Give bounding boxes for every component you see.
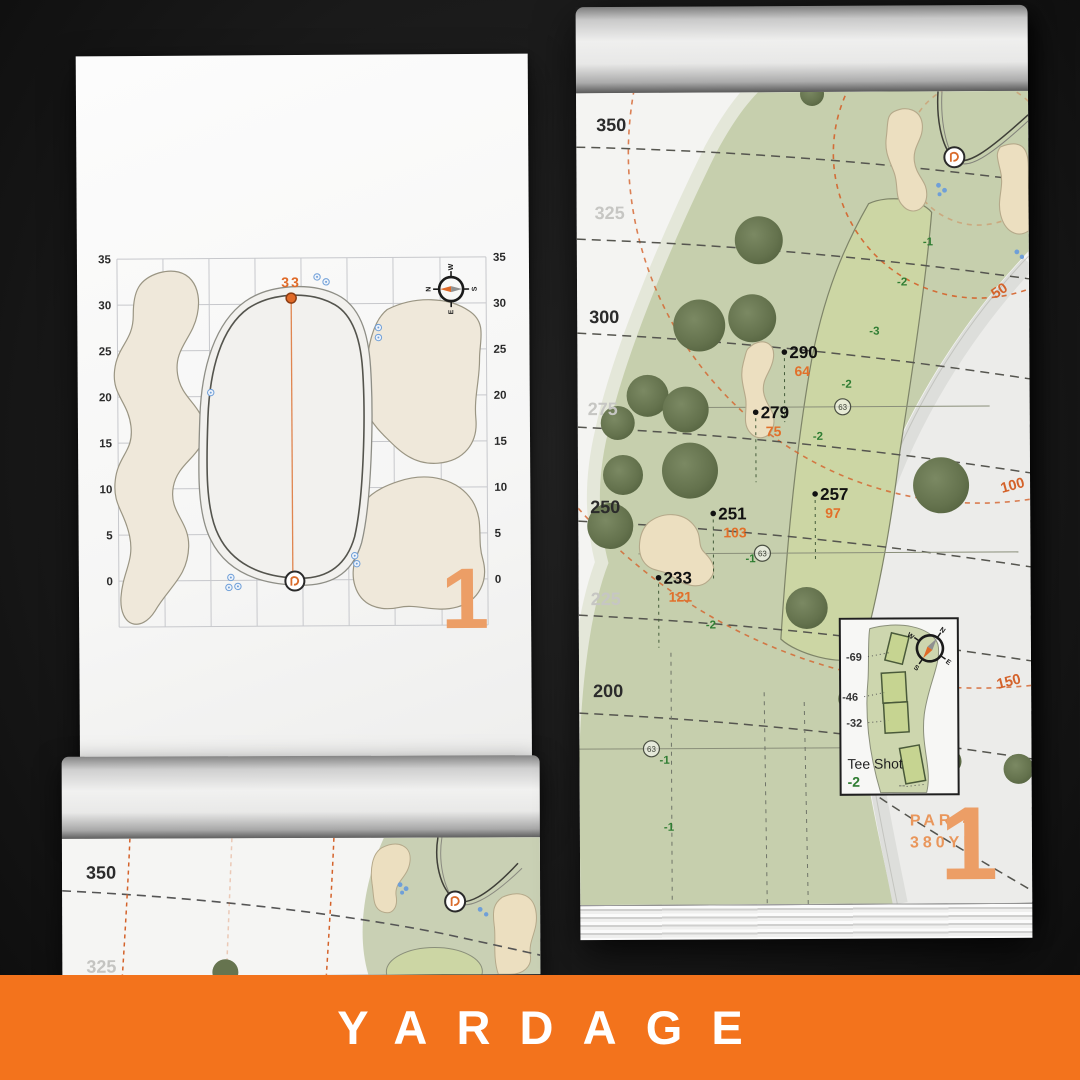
hole-number: 1 — [940, 786, 998, 902]
svg-text:10: 10 — [100, 484, 113, 496]
svg-text:233: 233 — [664, 569, 692, 588]
preview-tick-350: 350 — [86, 863, 116, 883]
svg-text:75: 75 — [766, 423, 782, 439]
svg-text:-2: -2 — [813, 431, 823, 443]
svg-text:63: 63 — [838, 403, 847, 412]
svg-text:350: 350 — [596, 115, 626, 135]
pin-distance-label: 33 — [281, 274, 301, 290]
hole-map-sheet: -1 -2 -3 -2 -2 -1 -2 -1 -1 63 63 — [576, 91, 1032, 905]
svg-text:-2: -2 — [842, 379, 852, 391]
left-yardage-page: 33 — [76, 54, 533, 817]
svg-text:30: 30 — [98, 300, 111, 312]
preview-tick-325: 325 — [86, 957, 116, 976]
svg-text:25: 25 — [99, 346, 112, 358]
svg-text:300: 300 — [589, 307, 619, 327]
svg-text:103: 103 — [723, 524, 747, 540]
svg-text:30: 30 — [493, 298, 506, 310]
svg-text:25: 25 — [493, 344, 506, 356]
svg-text:-1: -1 — [664, 822, 675, 834]
svg-text:5: 5 — [106, 530, 113, 542]
svg-text:290: 290 — [789, 343, 817, 362]
svg-text:257: 257 — [820, 485, 848, 504]
svg-text:97: 97 — [825, 505, 841, 521]
tee-shot-dots: -- — [899, 780, 906, 791]
svg-text:279: 279 — [761, 403, 789, 422]
svg-text:0: 0 — [495, 574, 501, 586]
bottom-left-booklet: 350 325 — [62, 755, 541, 976]
bunker-left — [114, 271, 206, 624]
svg-text:-1: -1 — [923, 236, 934, 248]
svg-text:N: N — [426, 287, 433, 292]
hole-number: 1 — [441, 551, 489, 633]
svg-text:-32: -32 — [846, 718, 862, 730]
svg-text:35: 35 — [98, 254, 111, 266]
title-banner: YARDAGE — [0, 975, 1080, 1080]
svg-text:20: 20 — [494, 390, 507, 402]
green-entry-marker — [944, 147, 964, 167]
green-detail-map: 33 — [97, 239, 511, 634]
bunker-right-upper — [362, 299, 482, 463]
tee-shot-title: Tee Shot — [847, 755, 902, 771]
preview-green-entry-marker — [445, 891, 465, 911]
right-booklet: -1 -2 -3 -2 -2 -1 -2 -1 -1 63 63 — [576, 5, 1033, 939]
svg-text:325: 325 — [595, 203, 625, 223]
svg-text:64: 64 — [794, 363, 810, 379]
page-stack-edge — [580, 903, 1032, 940]
svg-text:-2: -2 — [897, 276, 907, 288]
bottom-left-sheet: 350 325 — [62, 837, 540, 976]
green-entry-marker — [285, 572, 304, 591]
pin-dot — [286, 293, 296, 303]
svg-text:200: 200 — [593, 681, 623, 701]
page-curl-top — [576, 5, 1028, 93]
svg-text:35: 35 — [493, 252, 506, 264]
svg-text:-46: -46 — [842, 692, 858, 704]
svg-text:63: 63 — [647, 745, 656, 754]
svg-text:5: 5 — [495, 528, 502, 540]
svg-text:225: 225 — [591, 589, 621, 609]
svg-text:15: 15 — [494, 436, 507, 448]
svg-text:275: 275 — [588, 399, 618, 419]
svg-text:121: 121 — [669, 589, 693, 605]
green-outline-outer — [198, 286, 373, 586]
svg-text:W: W — [448, 263, 455, 270]
preview-bunker-2 — [493, 894, 536, 975]
svg-text:-1: -1 — [659, 755, 670, 767]
svg-text:250: 250 — [590, 497, 620, 517]
mockup-scene: 33 — [0, 0, 1080, 1080]
svg-text:20: 20 — [99, 392, 112, 404]
tee-shot-inset: -69 -46 -32 Tee Shot -2 -- — [840, 613, 966, 795]
hole-map: -1 -2 -3 -2 -2 -1 -2 -1 -1 63 63 — [576, 91, 1032, 905]
svg-text:10: 10 — [494, 482, 507, 494]
banner-label: YARDAGE — [308, 1000, 772, 1055]
svg-text:E: E — [448, 309, 455, 314]
svg-text:-3: -3 — [869, 326, 879, 338]
svg-text:-69: -69 — [846, 652, 862, 664]
svg-text:0: 0 — [106, 576, 112, 588]
svg-text:S: S — [472, 286, 479, 291]
hole-map-preview: 350 325 — [62, 837, 540, 976]
page-curl-top — [62, 755, 540, 839]
svg-text:251: 251 — [718, 504, 746, 523]
svg-text:63: 63 — [758, 549, 767, 558]
svg-text:15: 15 — [99, 438, 112, 450]
tee-shot-slope: -2 — [848, 774, 861, 790]
svg-text:-2: -2 — [706, 619, 716, 631]
